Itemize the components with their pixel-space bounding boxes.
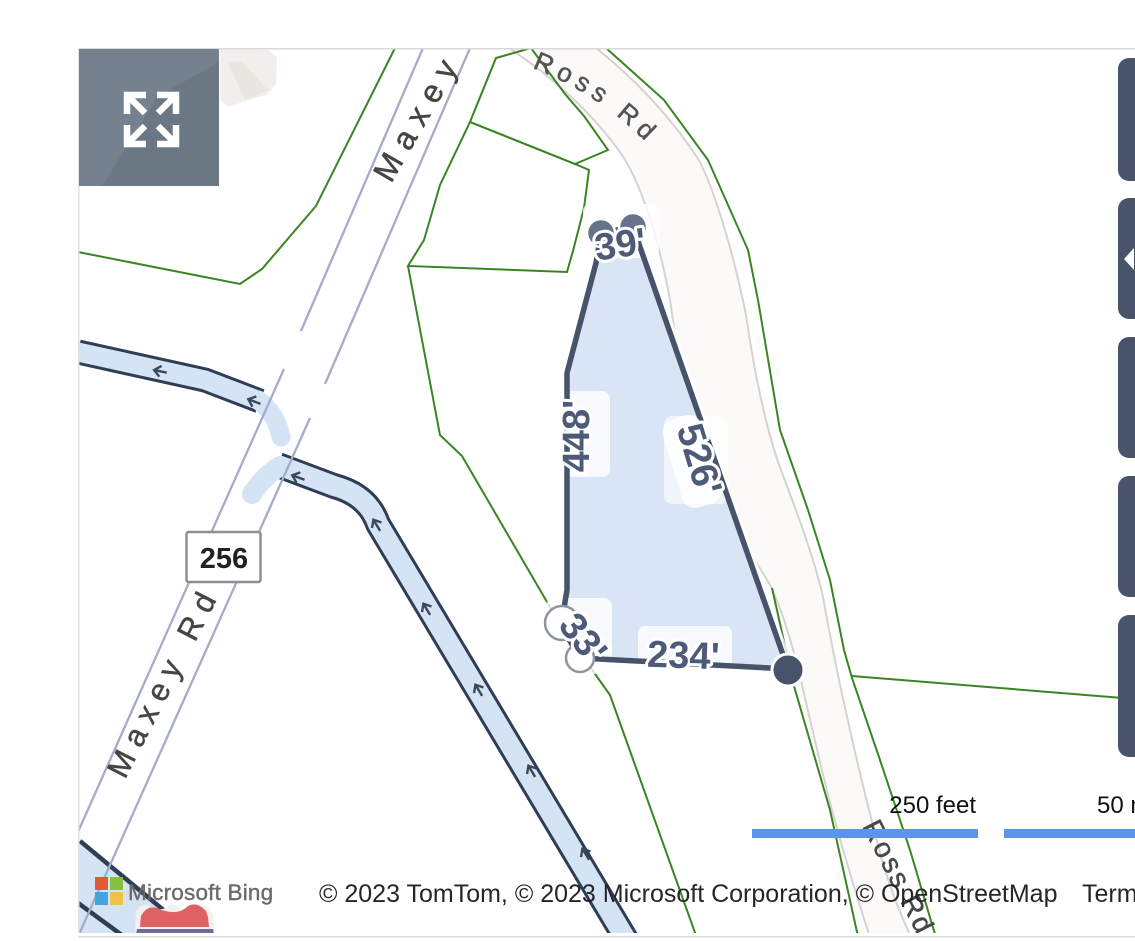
svg-text:448': 448' [556,400,598,472]
svg-text:39': 39' [592,221,649,270]
svg-text:234': 234' [646,634,720,679]
svg-text:50 m: 50 m [1097,792,1135,819]
svg-text:© 2023 TomTom, © 2023 Microsof: © 2023 TomTom, © 2023 Microsoft Corporat… [319,880,1057,908]
svg-text:Terms: Terms [1082,880,1135,908]
svg-text:250 feet: 250 feet [889,792,976,819]
svg-text:256: 256 [200,543,248,575]
svg-text:Microsoft Bing: Microsoft Bing [128,880,273,905]
